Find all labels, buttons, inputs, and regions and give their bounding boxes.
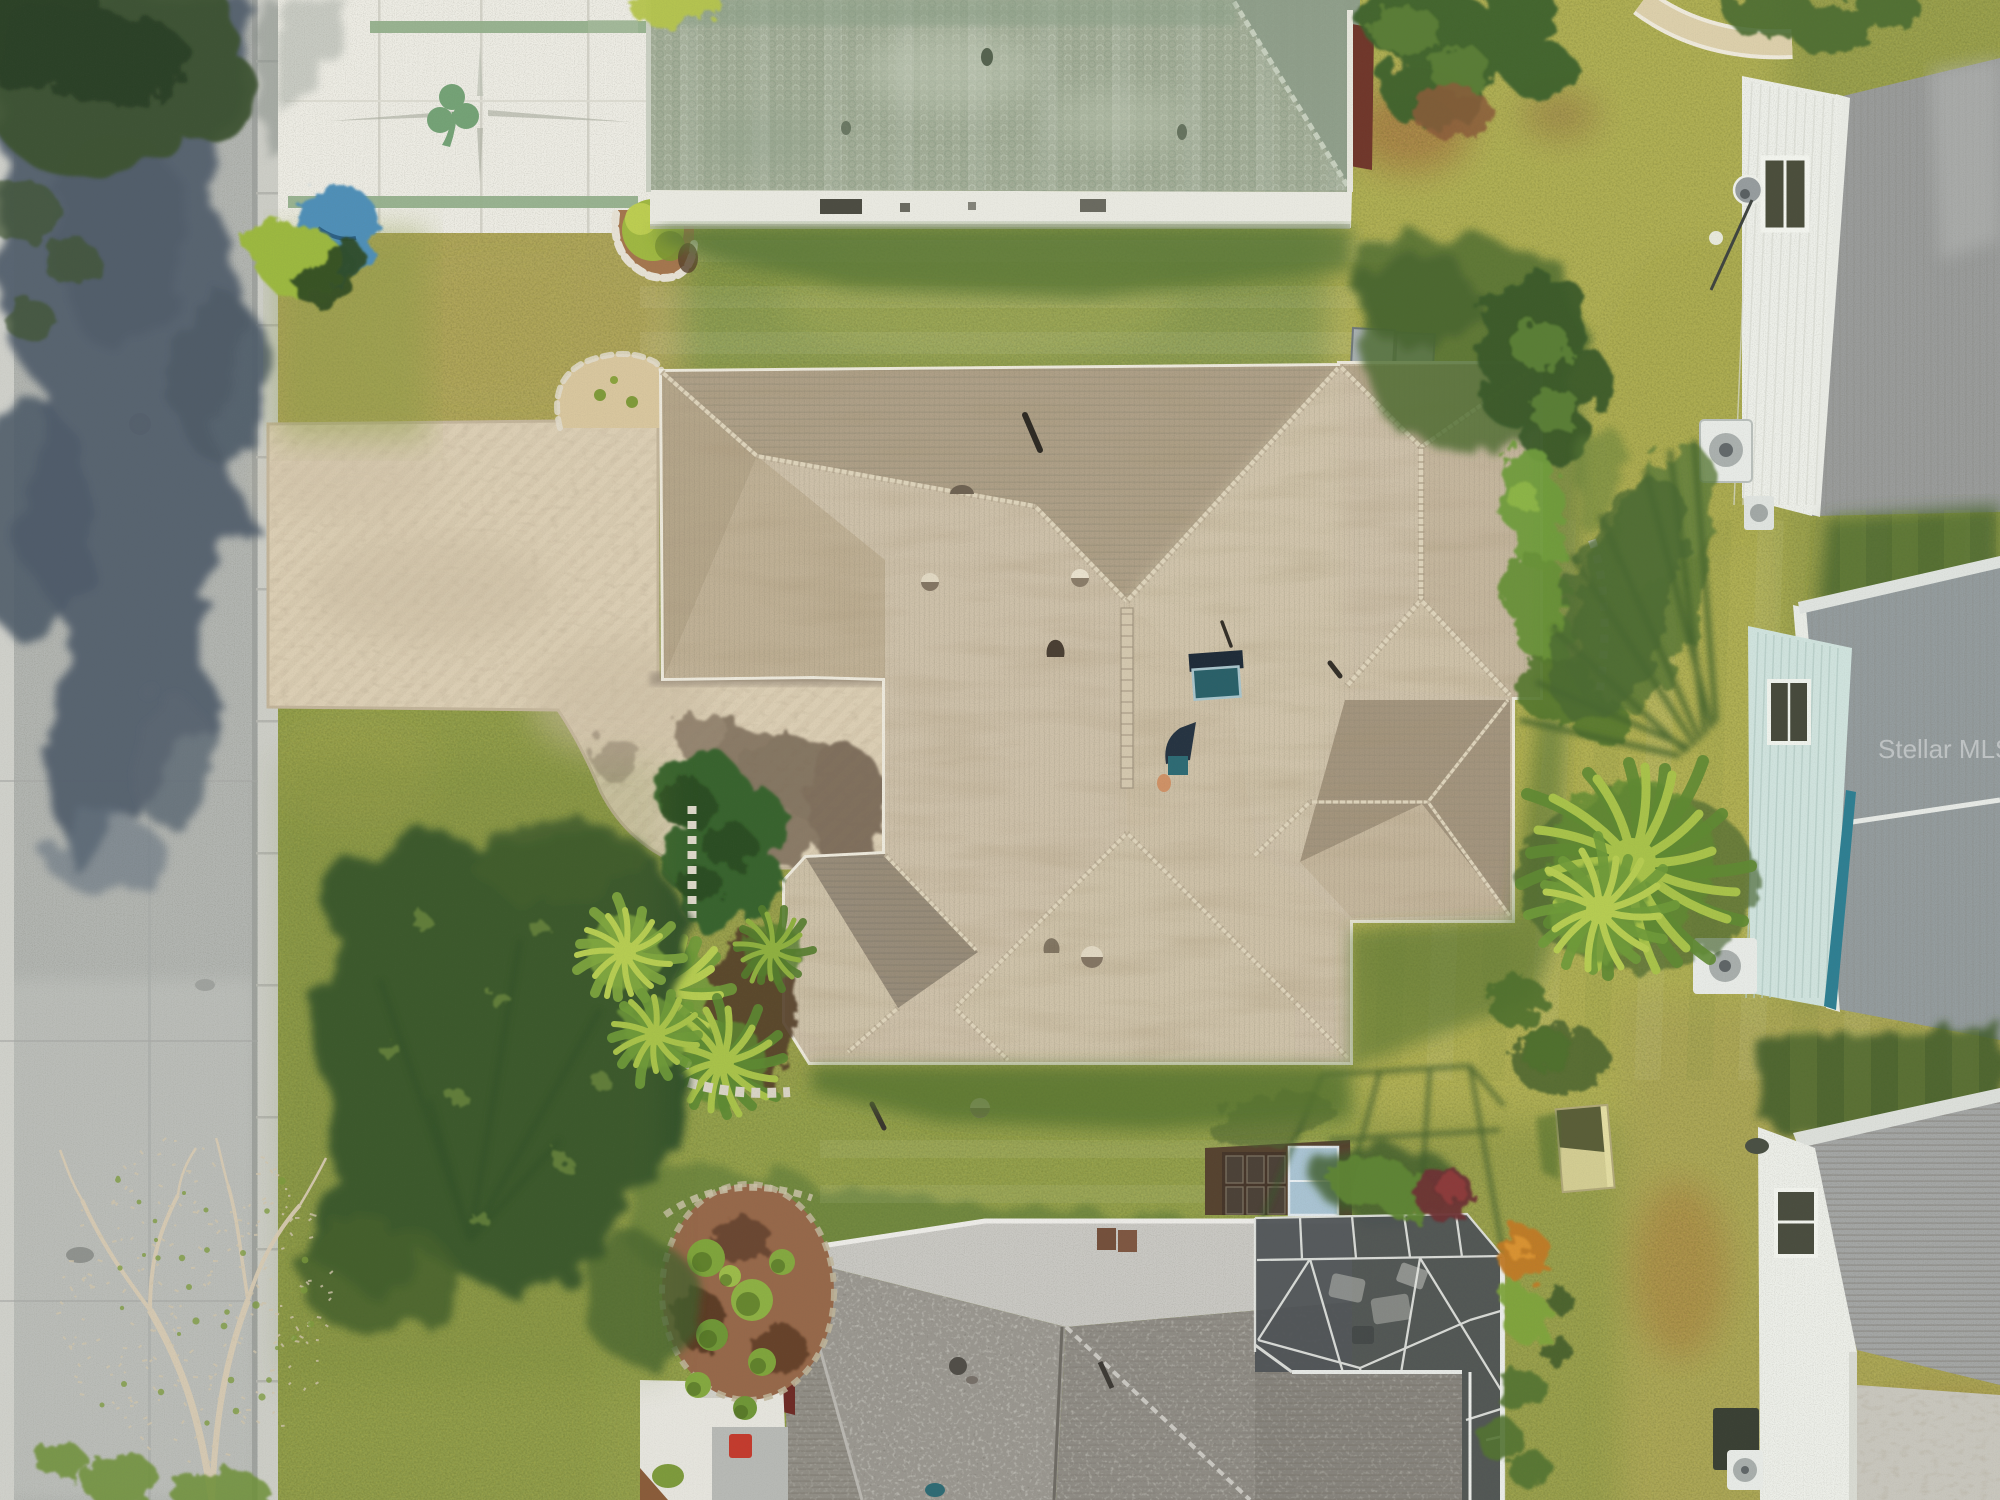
svg-text:Stellar MLS: Stellar MLS: [1878, 734, 2000, 764]
